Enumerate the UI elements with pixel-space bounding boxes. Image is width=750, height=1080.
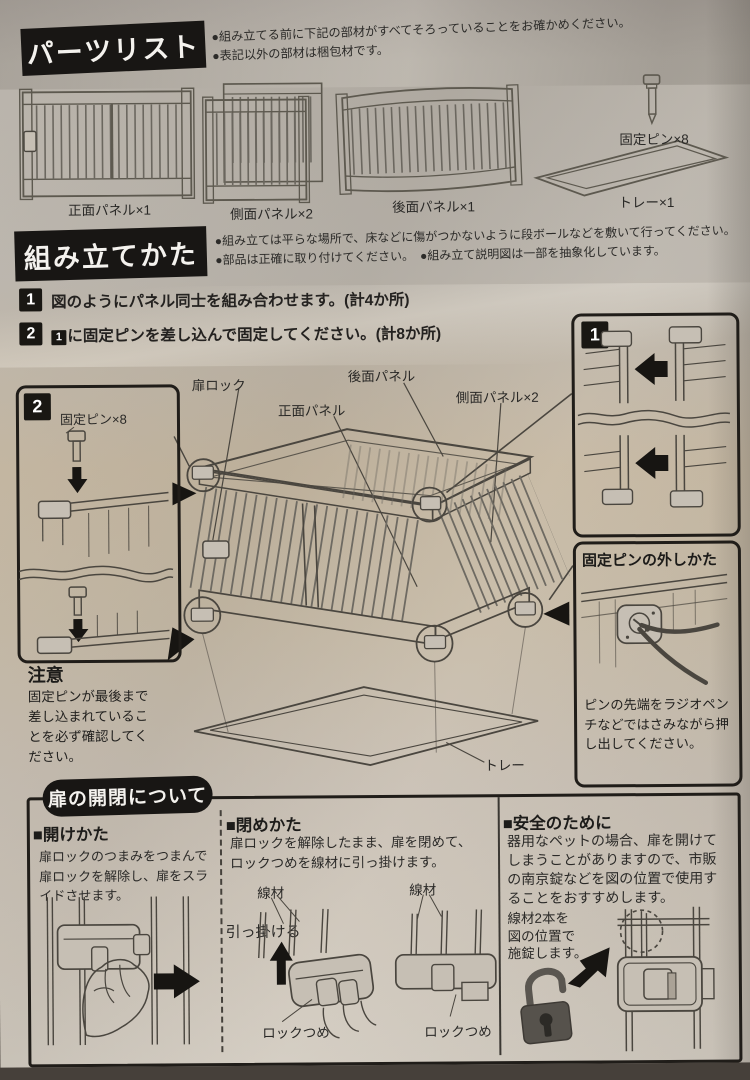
close-text: 扉ロックを解除したまま、扉を閉めて、ロックつめを線材に引っ掛けます。 (230, 832, 482, 874)
safety-lock-drawing (597, 905, 734, 1056)
tray-callout: トレー (484, 754, 525, 774)
safety-title: ■安全のために (503, 809, 612, 834)
insert-arrow-top (635, 353, 668, 385)
pin-removal-title: 固定ピンの外しかた (582, 549, 717, 571)
front-panel-callout: 正面パネル (278, 399, 346, 419)
front-panel-drawing (20, 82, 197, 205)
caution-text: 固定ピンが最後まで差し込まれていることを必ず確認してください。 (28, 687, 155, 768)
safety-note-line1: 線材2本を (507, 909, 597, 927)
door-lock-drawing (203, 541, 229, 558)
fixing-pin-drawing (636, 73, 670, 131)
assembly-step-1: 1 図のようにパネル同士を組み合わせます。(計4か所) (19, 286, 410, 313)
insert-arrow-bottom (635, 447, 668, 479)
side-panel-callout: 側面パネル×2 (456, 386, 539, 407)
parts-list-header: パーツリスト (20, 21, 206, 76)
pin-removal-text: ピンの先端をラジオペンチなどではさみながら押し出してください。 (584, 695, 734, 755)
safety-text: 器用なペットの場合、扉を開けてしまうことがありますので、市販の南京錠などを図の位… (507, 831, 720, 908)
pin-insert-arrow-top (67, 467, 87, 493)
paper-background: パーツリスト ●組み立てる前に下記の部材がすべてそろっていることをお確かめくださ… (0, 0, 750, 1068)
close-title: ■閉めかた (226, 812, 302, 837)
back-panel-callout: 後面パネル (348, 365, 416, 385)
fixing-pin-label: 固定ピン×8 (604, 128, 704, 149)
caution-title: 注意 (28, 661, 64, 687)
assembly-notes: ●組み立ては平らな場所で、床などに傷がつかないように段ボールなどを敷いて行ってく… (215, 221, 737, 269)
inset-2-drawing (18, 388, 174, 653)
step-1-text: 図のようにパネル同士を組み合わせます。(計4か所) (51, 286, 410, 313)
slide-arrow-icon (154, 964, 200, 998)
door-lock-callout: 扉ロック (192, 374, 246, 394)
front-panel-label: 正面パネル×1 (34, 198, 184, 219)
pin-removal-drawing (577, 571, 732, 692)
side-panel-label: 側面パネル×2 (216, 202, 326, 223)
instruction-sheet-photo: パーツリスト ●組み立てる前に下記の部材がすべてそろっていることをお確かめくださ… (0, 0, 750, 1080)
door-lock-part-icon (24, 131, 36, 151)
tray-label: トレー×1 (602, 191, 690, 212)
join-arrow-right (543, 602, 569, 626)
inset-1-drawing (575, 317, 732, 530)
back-panel-label: 後面パネル×1 (378, 195, 488, 216)
open-door-drawing (33, 894, 214, 1051)
lock-claw (432, 964, 454, 990)
side-panel-drawing (202, 83, 327, 208)
assembly-header: 組み立てかた (14, 226, 207, 281)
claw-label-right: ロックつめ (424, 1020, 492, 1040)
back-panel-drawing (336, 80, 523, 201)
claw-label-left: ロックつめ (262, 1021, 330, 1041)
door-section-header: 扉の開閉について (42, 775, 213, 817)
open-title: ■開けかた (33, 821, 109, 846)
pliers-handle-icon (639, 629, 705, 683)
step-1-number: 1 (19, 288, 42, 311)
